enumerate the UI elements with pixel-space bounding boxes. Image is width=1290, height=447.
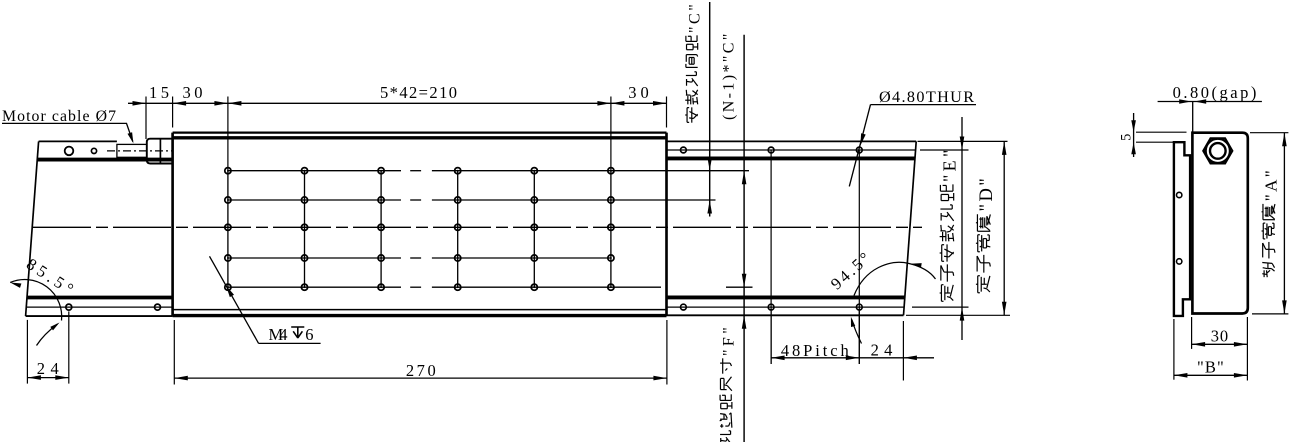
svg-text:5: 5 — [1119, 134, 1135, 141]
svg-text:24: 24 — [37, 359, 59, 378]
svg-text:"B": "B" — [1197, 358, 1224, 377]
svg-text:Ø4.80THUR: Ø4.80THUR — [879, 88, 974, 106]
svg-text:M4: M4 — [269, 325, 288, 344]
svg-text:15: 15 — [149, 83, 169, 102]
svg-text:"F": "F" — [721, 327, 738, 356]
svg-text:(N-1)*"C": (N-1)*"C" — [721, 34, 738, 120]
svg-text:"E": "E" — [940, 150, 960, 182]
svg-text:85.5°: 85.5° — [23, 254, 77, 298]
svg-text:"A": "A" — [1262, 170, 1281, 201]
svg-text:24: 24 — [871, 340, 893, 359]
svg-text:0.80(gap): 0.80(gap) — [1173, 83, 1257, 102]
svg-text:6: 6 — [305, 325, 313, 344]
svg-text:"C": "C" — [686, 4, 703, 33]
svg-text:30: 30 — [1211, 327, 1228, 346]
svg-text:"D": "D" — [977, 178, 997, 211]
svg-text:30: 30 — [628, 83, 648, 102]
svg-text:30: 30 — [183, 83, 203, 102]
svg-text:5*42=210: 5*42=210 — [380, 83, 457, 102]
svg-text:270: 270 — [406, 361, 436, 380]
svg-text:Motor cable Ø7: Motor cable Ø7 — [2, 108, 116, 125]
svg-text:94.5°: 94.5° — [827, 248, 874, 293]
